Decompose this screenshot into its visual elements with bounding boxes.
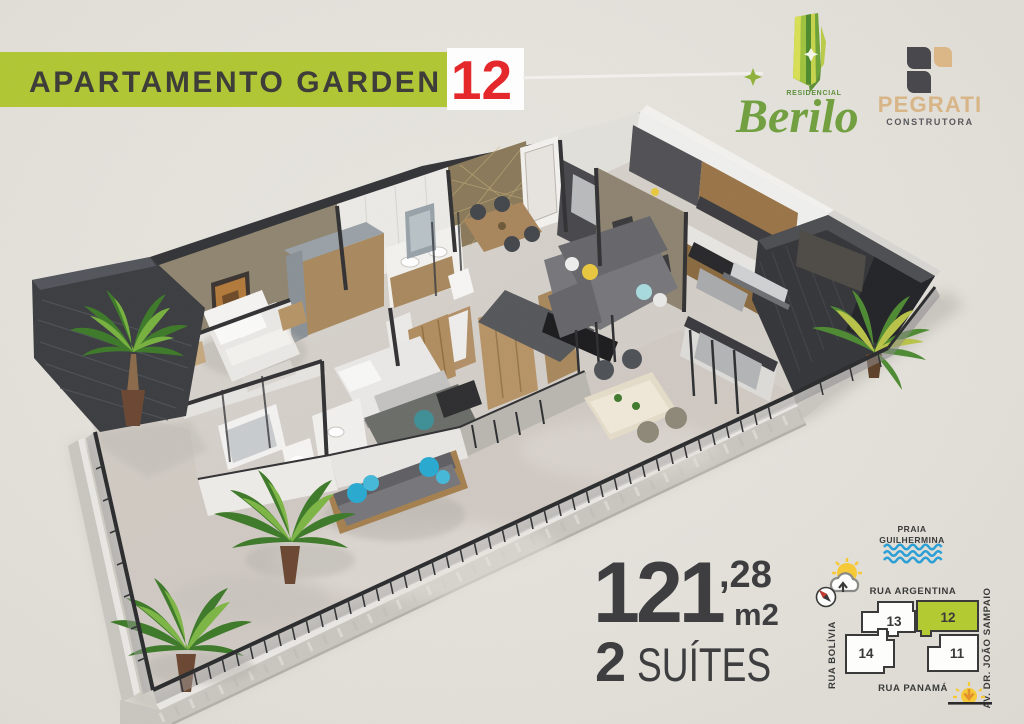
svg-text:12: 12 bbox=[940, 610, 955, 625]
svg-text:RUA PANAMÁ: RUA PANAMÁ bbox=[878, 683, 948, 694]
svg-text:RUA ARGENTINA: RUA ARGENTINA bbox=[870, 586, 957, 597]
svg-text:GUILHERMINA: GUILHERMINA bbox=[879, 535, 944, 545]
svg-text:11: 11 bbox=[950, 646, 965, 661]
svg-text:14: 14 bbox=[858, 646, 874, 661]
svg-text:AV. DR. JOÃO SAMPAIO: AV. DR. JOÃO SAMPAIO bbox=[982, 587, 993, 708]
svg-text:RUA BOLÍVIA: RUA BOLÍVIA bbox=[827, 621, 838, 689]
svg-text:PRAIA: PRAIA bbox=[898, 524, 927, 534]
svg-text:13: 13 bbox=[886, 614, 902, 629]
